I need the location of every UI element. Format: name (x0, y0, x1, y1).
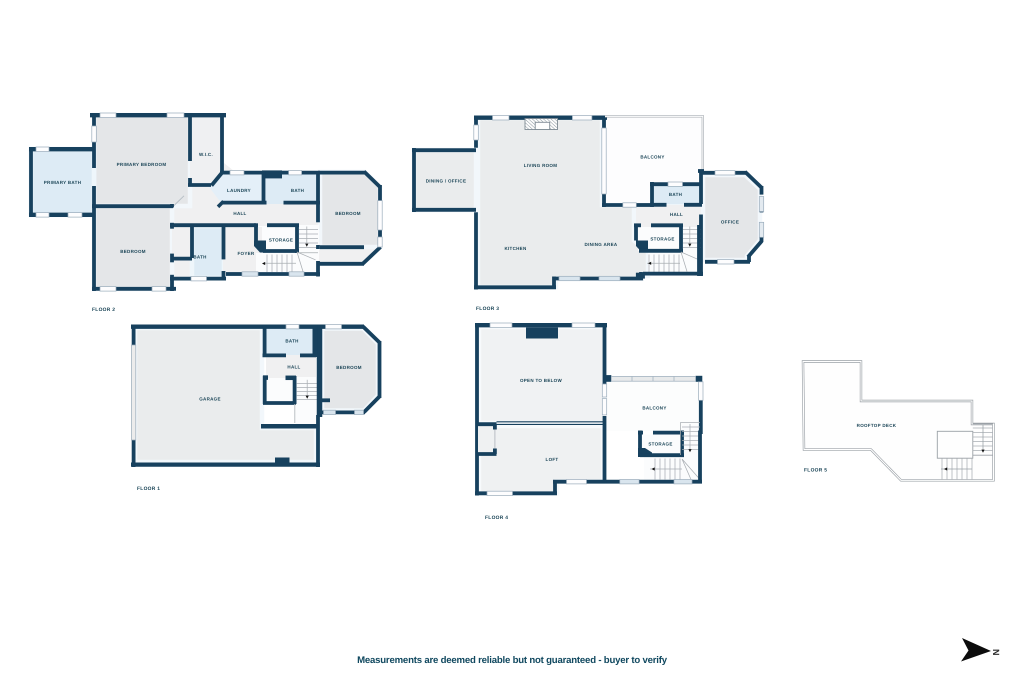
svg-text:LAUNDRY: LAUNDRY (227, 188, 251, 193)
svg-text:BEDROOM: BEDROOM (120, 249, 146, 254)
svg-text:FLOOR 3: FLOOR 3 (476, 306, 499, 312)
svg-text:BEDROOM: BEDROOM (335, 211, 361, 216)
svg-text:HALL: HALL (233, 211, 246, 216)
svg-text:BATH: BATH (669, 192, 682, 197)
svg-text:LIVING ROOM: LIVING ROOM (524, 163, 558, 168)
svg-text:N: N (991, 649, 1001, 656)
svg-text:OPEN TO BELOW: OPEN TO BELOW (520, 378, 563, 383)
svg-text:FOYER: FOYER (237, 251, 254, 256)
svg-text:BALCONY: BALCONY (640, 155, 664, 160)
svg-text:FLOOR 4: FLOOR 4 (485, 515, 508, 521)
svg-text:ROOFTOP DECK: ROOFTOP DECK (857, 423, 897, 428)
svg-text:W.I.C.: W.I.C. (199, 152, 213, 157)
svg-text:LOFT: LOFT (546, 457, 559, 462)
svg-text:DINING / OFFICE: DINING / OFFICE (426, 179, 467, 184)
svg-text:BATH: BATH (193, 255, 206, 260)
svg-text:FLOOR 1: FLOOR 1 (137, 486, 160, 492)
svg-text:PRIMARY BEDROOM: PRIMARY BEDROOM (117, 162, 167, 167)
svg-text:BATH: BATH (291, 188, 304, 193)
svg-text:STORAGE: STORAGE (650, 237, 674, 242)
svg-text:GARAGE: GARAGE (199, 397, 221, 402)
svg-text:DINING AREA: DINING AREA (585, 242, 618, 247)
svg-text:BALCONY: BALCONY (642, 406, 666, 411)
svg-text:HALL: HALL (287, 365, 300, 370)
svg-text:HALL: HALL (670, 212, 683, 217)
svg-text:OFFICE: OFFICE (721, 220, 739, 225)
svg-text:Measurements are deemed reliab: Measurements are deemed reliable but not… (357, 655, 668, 666)
svg-text:KITCHEN: KITCHEN (504, 246, 526, 251)
svg-text:PRIMARY BATH: PRIMARY BATH (44, 180, 82, 185)
svg-text:BEDROOM: BEDROOM (336, 365, 362, 370)
svg-text:FLOOR 2: FLOOR 2 (92, 307, 115, 313)
svg-text:STORAGE: STORAGE (648, 442, 672, 447)
svg-text:BATH: BATH (285, 339, 298, 344)
svg-text:STORAGE: STORAGE (269, 238, 293, 243)
svg-text:FLOOR 5: FLOOR 5 (804, 468, 827, 474)
